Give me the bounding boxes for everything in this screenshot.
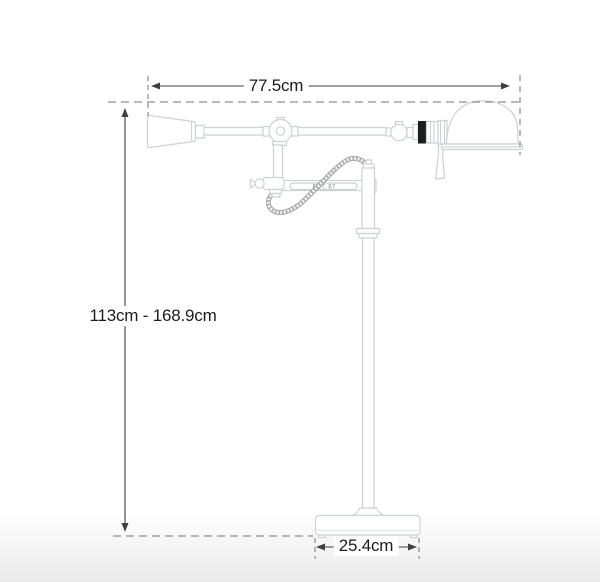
- elbow-joint: [386, 122, 407, 141]
- vertical-arm: [273, 142, 287, 179]
- lamp-shade: [442, 101, 523, 150]
- lower-swivel-joint: [251, 178, 285, 198]
- lamp-socket: [407, 121, 447, 145]
- width-arrow-right: [501, 83, 510, 90]
- base-foot-left: [319, 535, 326, 538]
- pole-base-flare: [353, 508, 385, 516]
- pole-adjustment-collar: [357, 229, 380, 239]
- left-arm: [204, 128, 263, 136]
- width-arrow-left: [151, 83, 160, 90]
- lamp-pole: [353, 168, 385, 516]
- center-swivel-joint: [263, 118, 298, 143]
- base-arrow-left: [316, 544, 325, 551]
- height-arrow-down: [122, 523, 129, 532]
- diagram-canvas: EST. 67: [0, 0, 600, 582]
- right-arm: [298, 128, 386, 136]
- height-arrow-up: [122, 108, 129, 117]
- base-foot-right: [411, 535, 418, 538]
- base-arrow-right: [408, 544, 417, 551]
- base-width-dimension-label: 25.4cm: [334, 536, 399, 556]
- lamp-base: [316, 516, 421, 538]
- socket-switch-band: [418, 121, 427, 144]
- width-dimension-label: 77.5cm: [244, 76, 309, 96]
- counterweight-shade: [148, 115, 205, 147]
- height-dimension-label: 113cm - 168.9cm: [84, 306, 221, 326]
